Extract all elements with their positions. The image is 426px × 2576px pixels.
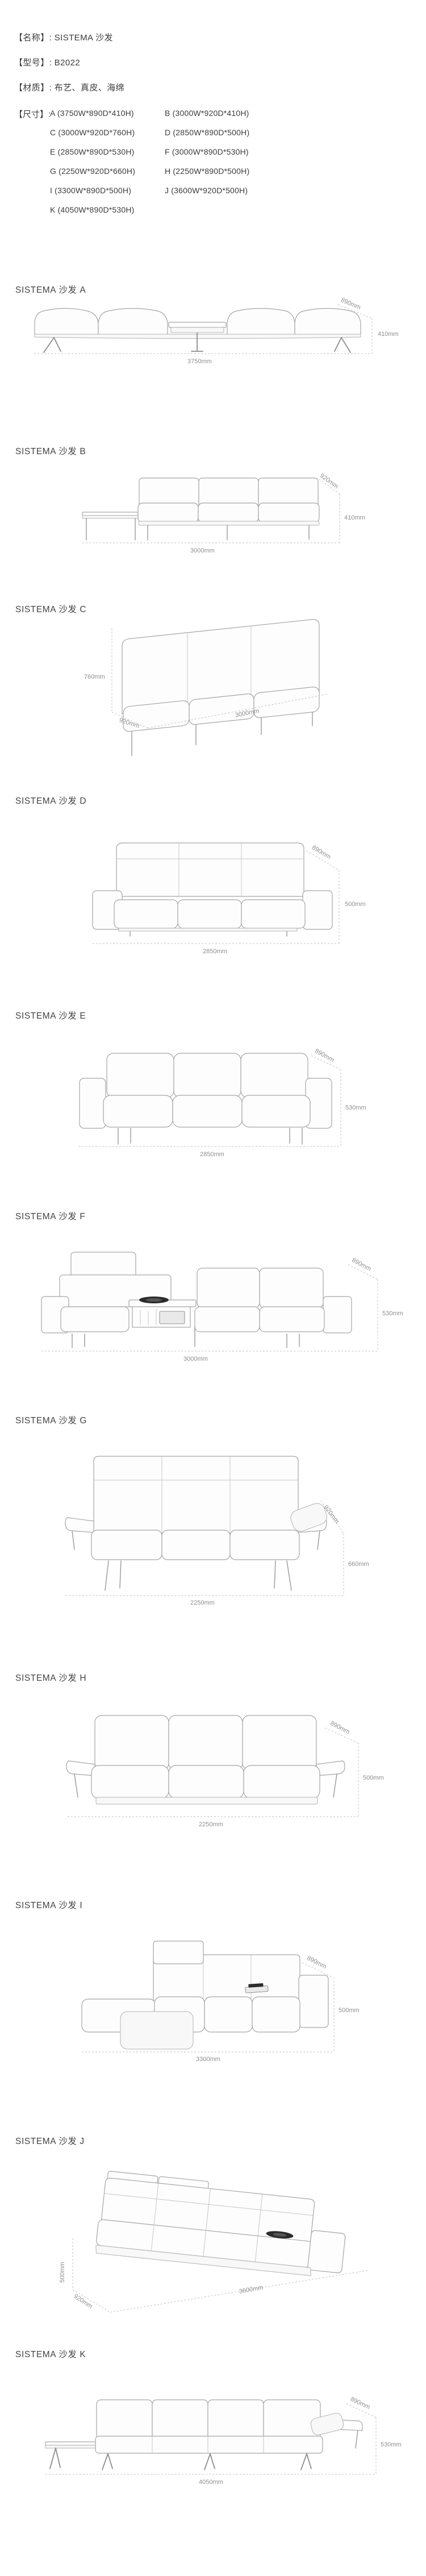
sofa-a-line-drawing	[31, 296, 406, 375]
section-drawing-a: 890mm 410mm 3750mm	[31, 296, 406, 375]
height-label-b: 410mm	[344, 514, 365, 521]
size-list-label: 【尺寸】:	[14, 108, 51, 120]
height-label-k: 530mm	[381, 2441, 402, 2448]
section-drawing-f: 890mm 530mm 3000mm	[37, 1248, 412, 1367]
section-drawing-g: 920mm 660mm 2250mm	[54, 1449, 383, 1614]
height-label-f: 530mm	[382, 1310, 403, 1317]
height-label-h: 500mm	[363, 1775, 384, 1781]
size-item-b: B (3000W*920D*410H)	[165, 109, 249, 118]
width-label-i: 3300mm	[196, 2056, 220, 2063]
height-label-a: 410mm	[378, 331, 399, 338]
section-title-c: SISTEMA 沙发 C	[15, 603, 86, 615]
sofa-h-line-drawing	[60, 1705, 400, 1833]
spec-sheet-page: 【名称】: SISTEMA 沙发 【型号】: B2022 【材质】: 布艺、真皮…	[0, 0, 426, 2576]
width-label-k: 4050mm	[199, 2479, 223, 2486]
section-title-d: SISTEMA 沙发 D	[15, 794, 86, 807]
section-title-g: SISTEMA 沙发 G	[15, 1414, 87, 1426]
section-title-f: SISTEMA 沙发 F	[15, 1210, 85, 1222]
size-item-c: C (3000W*920D*760H)	[50, 128, 135, 137]
section-title-h: SISTEMA 沙发 H	[15, 1671, 86, 1684]
size-item-d: D (2850W*890D*500H)	[165, 128, 249, 137]
section-title-i: SISTEMA 沙发 I	[15, 1898, 82, 1911]
size-item-k: K (4050W*890D*530H)	[50, 205, 135, 214]
model-line: 【型号】: B2022	[14, 56, 80, 68]
sofa-b-line-drawing	[80, 463, 352, 554]
height-label-c: 760mm	[84, 674, 105, 680]
height-label-d: 500mm	[345, 901, 366, 908]
size-item-e: E (2850W*890D*530H)	[50, 147, 135, 156]
width-label-g: 2250mm	[190, 1599, 215, 1606]
width-label-d: 2850mm	[203, 948, 227, 955]
sofa-g-line-drawing	[54, 1449, 383, 1614]
size-item-h: H (2250W*890D*500H)	[165, 167, 249, 176]
size-item-g: G (2250W*920D*660H)	[50, 167, 135, 176]
width-label-f: 3000mm	[183, 1356, 208, 1362]
width-label-h: 2250mm	[199, 1821, 223, 1828]
section-drawing-d: 890mm 500mm 2850mm	[82, 827, 378, 958]
sofa-i-line-drawing	[68, 1930, 386, 2060]
width-label-b: 3000mm	[190, 547, 215, 554]
section-title-e: SISTEMA 沙发 E	[15, 1009, 86, 1021]
section-title-k: SISTEMA 沙发 K	[15, 2348, 86, 2360]
section-drawing-c: 760mm 920mm 3000mm	[74, 617, 346, 773]
width-label-a: 3750mm	[187, 358, 212, 365]
size-item-i: I (3300W*890D*500H)	[50, 186, 131, 195]
width-label-e: 2850mm	[200, 1151, 224, 1158]
section-drawing-b: 920mm 410mm 3000mm	[80, 463, 352, 554]
material-line: 【材质】: 布艺、真皮、海绵	[14, 81, 124, 93]
section-title-b: SISTEMA 沙发 B	[15, 444, 86, 457]
sofa-d-line-drawing	[82, 827, 378, 958]
product-name-line: 【名称】: SISTEMA 沙发	[14, 31, 113, 43]
size-item-f: F (3000W*890D*530H)	[165, 147, 249, 156]
sofa-e-line-drawing	[74, 1043, 381, 1157]
section-drawing-k: 890mm 530mm 4050mm	[40, 2384, 409, 2490]
size-item-j: J (3600W*920D*500H)	[165, 186, 248, 195]
height-label-j: 500mm	[59, 2262, 66, 2283]
sofa-c-line-drawing	[74, 617, 346, 773]
size-item-a: A (3750W*890D*410H)	[50, 109, 134, 118]
section-drawing-e: 890mm 530mm 2850mm	[74, 1043, 381, 1157]
sofa-j-line-drawing	[51, 2171, 381, 2316]
height-label-g: 660mm	[348, 1561, 369, 1568]
section-title-a: SISTEMA 沙发 A	[15, 283, 86, 296]
section-drawing-j: 500mm 920mm 3600mm	[51, 2171, 381, 2316]
height-label-e: 530mm	[345, 1104, 366, 1111]
height-label-i: 500mm	[339, 2007, 360, 2014]
section-drawing-i: 890mm 500mm 3300mm	[68, 1930, 386, 2060]
section-drawing-h: 890mm 500mm 2250mm	[60, 1705, 400, 1833]
section-title-j: SISTEMA 沙发 J	[15, 2134, 85, 2147]
